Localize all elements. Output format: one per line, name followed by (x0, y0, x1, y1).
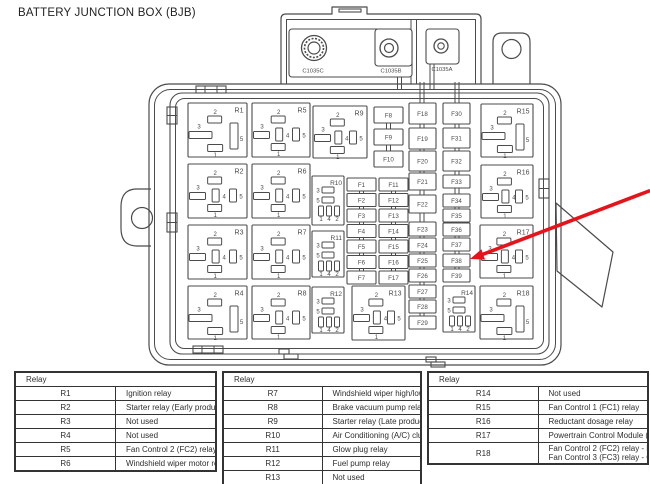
relay-pin (208, 205, 222, 212)
relay-label: R18 (517, 291, 530, 298)
fuse-label: F13 (388, 213, 399, 220)
connector-label: C1035A (432, 67, 453, 73)
relay-code-cell: R13 (224, 471, 323, 484)
fuse-label: F26 (417, 273, 428, 280)
fuse-label: F6 (358, 259, 366, 266)
relay-pin (322, 187, 334, 193)
relay-pin (230, 306, 238, 332)
relay-pin (327, 261, 332, 271)
fuse-label: F33 (451, 179, 462, 186)
relay-pin (315, 135, 331, 142)
relay-pin (276, 189, 283, 202)
relay-pin (190, 193, 206, 200)
relay-code-cell: R6 (16, 457, 116, 471)
relay-label: R8 (298, 291, 307, 298)
relay-pin (271, 238, 285, 245)
relay-pin (516, 306, 524, 332)
table-row: R1Ignition relay (16, 387, 216, 401)
relay-pin (501, 250, 508, 263)
relay-pin (354, 315, 370, 322)
table-row: R3Not used (16, 415, 216, 429)
relay-pin (482, 133, 505, 140)
fuse-label: F25 (417, 258, 428, 265)
relay-desc-cell: Fan Control 2 (FC2) relay - Gasoline (116, 443, 216, 457)
relay-pin (271, 116, 285, 123)
fuse-label: F20 (417, 158, 428, 165)
bottom-clip (279, 349, 289, 354)
connector-label: C1035C (302, 69, 323, 75)
relay-pin (276, 250, 283, 263)
roof-slot (339, 9, 361, 12)
relay-pin (212, 250, 219, 263)
relay-label: R14 (461, 290, 473, 297)
relay-label: R15 (517, 109, 530, 116)
relay-code-cell: R11 (224, 443, 323, 457)
relay-pin (189, 315, 212, 322)
relay-label: R16 (517, 170, 530, 177)
relay-desc-cell: Ignition relay (116, 387, 216, 401)
relay-pin (271, 299, 285, 306)
fuse-label: F14 (388, 228, 399, 235)
mount-bracket-right (556, 203, 613, 307)
page: BATTERY JUNCTION BOX (BJB) C1035CC1035BC… (0, 0, 650, 484)
fuse-label: F7 (358, 275, 366, 282)
relay-pin (230, 250, 237, 263)
relay-table-2: RelayR7Windshield wiper high/low speed r… (223, 372, 421, 484)
relay-pin (458, 316, 463, 326)
relay-pin (319, 317, 324, 327)
relay-desc-cell: Starter relay (Late production) (322, 415, 421, 429)
table-row: R12Fuel pump relay (224, 457, 421, 471)
fuse-label: F21 (417, 179, 428, 186)
fuse-label: F11 (388, 182, 399, 189)
relay-label: R1 (235, 108, 244, 115)
relay-label: R6 (298, 169, 307, 176)
relay-pin (254, 254, 270, 261)
relay-pin (516, 190, 523, 203)
relay-pin (208, 177, 222, 184)
relay-desc-cell: Starter relay (Early production) (116, 401, 216, 415)
table-row: R7Windshield wiper high/low speed relay (224, 387, 421, 401)
table-row: R2Starter relay (Early production) (16, 401, 216, 415)
relay-pin (322, 308, 334, 314)
relay-label: R9 (355, 111, 364, 118)
fuse-label: F19 (417, 136, 428, 143)
fuse-label: F32 (451, 158, 462, 165)
relay-pin (453, 307, 465, 313)
relay-desc-cell: Glow plug relay (322, 443, 421, 457)
fuse-label: F34 (451, 198, 462, 205)
relay-pin (450, 316, 455, 326)
relay-code-cell: R9 (224, 415, 323, 429)
relay-pin (335, 261, 340, 271)
relay-pin (516, 124, 524, 150)
relay-label: R3 (235, 230, 244, 237)
relay-pin (293, 189, 300, 202)
relay-label: R2 (235, 169, 244, 176)
relay-pin (322, 197, 334, 203)
relay-pin (322, 298, 334, 304)
relay-pin (322, 242, 334, 248)
relay-desc-cell: Windshield wiper motor relay (116, 457, 216, 471)
fuse-label: F18 (417, 111, 428, 118)
fuse-label: F38 (451, 258, 462, 265)
table-header: Relay (224, 373, 421, 387)
relay-pin (497, 328, 512, 335)
relay-pin (335, 131, 342, 144)
fuse-label: F31 (451, 135, 462, 142)
relay-pin (483, 194, 499, 201)
relay-code-cell: R18 (429, 443, 539, 464)
edge-foot (193, 346, 223, 353)
connector-ring-a (434, 39, 448, 53)
relay-pin (497, 178, 511, 185)
table-row: R4Not used (16, 429, 216, 443)
relay-pin (271, 144, 285, 151)
relay-pin (497, 206, 511, 213)
fuse-label: F23 (417, 226, 428, 233)
relay-pin (208, 238, 222, 245)
connector-ring-b (380, 39, 398, 57)
table-row: R9Starter relay (Late production) (224, 415, 421, 429)
relay-pin (293, 250, 300, 263)
fuse-label: F9 (385, 134, 393, 141)
relay-pin (254, 193, 270, 200)
relay-pin (254, 315, 270, 322)
relay-pin (271, 266, 285, 273)
relay-pin (319, 261, 324, 271)
relay-label: R11 (331, 235, 343, 242)
relay-desc-cell: Not used (116, 429, 216, 443)
fuse-label: F10 (383, 156, 394, 163)
fuse-label: F36 (451, 227, 462, 234)
fuse-label: F29 (417, 320, 428, 327)
fuse-label: F4 (358, 228, 366, 235)
relay-pin (388, 311, 395, 324)
fuse-label: F22 (417, 201, 428, 208)
fuse-label: F5 (358, 244, 366, 251)
relay-desc-cell: Powertrain Control Module (PCM) relay (538, 429, 648, 443)
table-row: R18Fan Control 2 (FC2) relay - DieselFan… (429, 443, 648, 464)
mount-hole-top (502, 40, 521, 59)
fuse-label: F24 (417, 242, 428, 249)
table-row: R16Reductant dosage relay (429, 415, 648, 429)
relay-pin (254, 132, 270, 139)
fuse-label: F16 (388, 259, 399, 266)
relay-desc-cell: Fuel pump relay (322, 457, 421, 471)
relay-label: R5 (298, 108, 307, 115)
relay-pin (330, 119, 344, 126)
fuse-label: F1 (358, 182, 366, 189)
fuse-label: F30 (451, 111, 462, 118)
relay-code-cell: R2 (16, 401, 116, 415)
relay-pin (208, 299, 222, 306)
table-row: R6Windshield wiper motor relay (16, 457, 216, 471)
relay-code-cell: R3 (16, 415, 116, 429)
table-row: R5Fan Control 2 (FC2) relay - Gasoline (16, 443, 216, 457)
fuse-label: F3 (358, 213, 366, 220)
fuse-label: F28 (417, 304, 428, 311)
relay-desc-cell: Fan Control 2 (FC2) relay - DieselFan Co… (538, 443, 648, 464)
fuse-label: F37 (451, 242, 462, 249)
relay-desc-cell: Reductant dosage relay (538, 415, 648, 429)
relay-pin (497, 299, 511, 306)
relay-pin (369, 327, 383, 334)
relay-desc-cell: Not used (538, 387, 648, 401)
relay-pin (208, 266, 222, 273)
table-row: R11Glow plug relay (224, 443, 421, 457)
table-row: R14Not used (429, 387, 648, 401)
relay-label: R12 (330, 291, 342, 298)
mount-ear-left (121, 189, 151, 246)
table-row: R17Powertrain Control Module (PCM) relay (429, 429, 648, 443)
relay-code-cell: R5 (16, 443, 116, 457)
table-row: R10Air Conditioning (A/C) clutch relay (224, 429, 421, 443)
relay-pin (327, 317, 332, 327)
relay-label: R4 (235, 291, 244, 298)
relay-label: R7 (298, 230, 307, 237)
relay-table-1: RelayR1Ignition relayR2Starter relay (Ea… (15, 372, 216, 471)
relay-pin (497, 146, 512, 153)
table-row: R13Not used (224, 471, 421, 484)
relay-pin (453, 297, 465, 303)
relay-pin (230, 189, 237, 202)
relay-pin (271, 205, 285, 212)
table-header: Relay (16, 373, 216, 387)
relay-pin (276, 311, 283, 324)
connector-label: C1035B (381, 69, 402, 75)
relay-desc-cell: Windshield wiper high/low speed relay (322, 387, 421, 401)
relay-code-cell: R1 (16, 387, 116, 401)
relay-pin (271, 327, 285, 334)
relay-label: R13 (389, 291, 402, 298)
relay-code-cell: R10 (224, 429, 323, 443)
fuse-label: F17 (388, 275, 399, 282)
relay-pin (481, 315, 504, 322)
relay-pin (335, 317, 340, 327)
relay-pin (208, 328, 223, 335)
relay-pin (208, 116, 222, 123)
relay-pin (516, 250, 523, 263)
bottom-clip (284, 354, 298, 359)
fuse-label: F27 (417, 289, 428, 296)
relay-code-cell: R8 (224, 401, 323, 415)
relay-pin (189, 132, 212, 139)
relay-desc-cell: Not used (116, 415, 216, 429)
relay-pin (293, 311, 300, 324)
relay-pin (276, 128, 283, 141)
relay-pin (369, 299, 383, 306)
relay-code-cell: R14 (429, 387, 539, 401)
relay-code-cell: R16 (429, 415, 539, 429)
relay-code-cell: R7 (224, 387, 323, 401)
relay-pin (190, 254, 206, 261)
relay-pin (208, 145, 223, 152)
fuse-label: F8 (385, 112, 393, 119)
relay-desc-cell: Fan Control 1 (FC1) relay (538, 401, 648, 415)
relay-code-cell: R17 (429, 429, 539, 443)
table-header: Relay (429, 373, 648, 387)
relay-pin (330, 147, 344, 154)
relay-table-3: RelayR14Not usedR15Fan Control 1 (FC1) r… (428, 372, 648, 464)
fuse-label: F12 (388, 197, 399, 204)
fuse-label: F39 (451, 273, 462, 280)
relay-code-cell: R12 (224, 457, 323, 471)
fuse-label: F2 (358, 197, 366, 204)
relay-code-cell: R4 (16, 429, 116, 443)
table-row: R8Brake vacuum pump relay (224, 401, 421, 415)
relay-pin (319, 206, 324, 216)
relay-desc-cell: Air Conditioning (A/C) clutch relay (322, 429, 421, 443)
relay-pin (497, 266, 511, 273)
relay-pin (212, 189, 219, 202)
relay-pin (502, 190, 509, 203)
relay-pin (230, 123, 238, 149)
relay-label: R10 (330, 180, 342, 187)
table-row: R15Fan Control 1 (FC1) relay (429, 401, 648, 415)
relay-desc-cell: Brake vacuum pump relay (322, 401, 421, 415)
fuse-label: F35 (451, 213, 462, 220)
relay-pin (497, 117, 511, 124)
relay-pin (327, 206, 332, 216)
relay-pin (466, 316, 471, 326)
relay-desc-cell: Not used (322, 471, 421, 484)
relay-pin (271, 177, 285, 184)
relay-pin (322, 252, 334, 258)
relay-pin (293, 128, 300, 141)
relay-pin (373, 311, 380, 324)
relay-code-cell: R15 (429, 401, 539, 415)
relay-pin (350, 131, 357, 144)
relay-pin (335, 206, 340, 216)
fuse-label: F15 (388, 244, 399, 251)
